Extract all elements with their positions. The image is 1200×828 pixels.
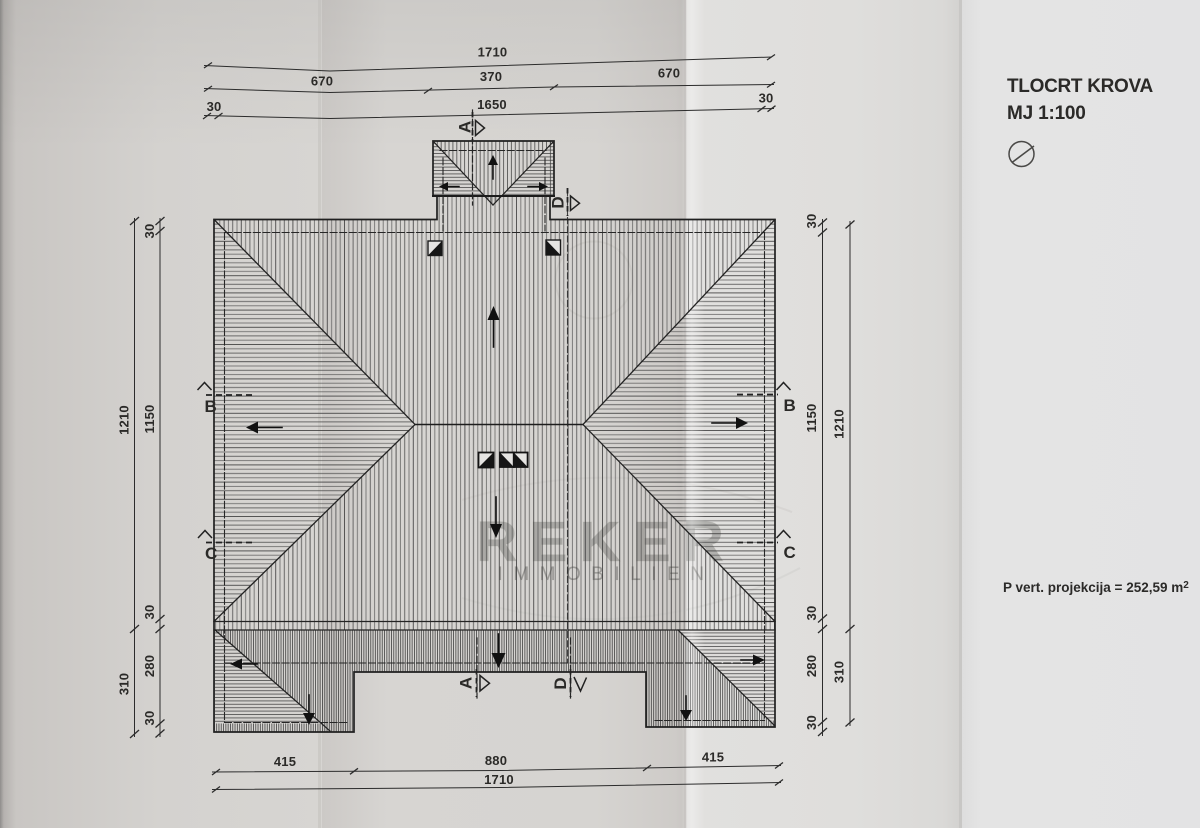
svg-text:TLOCRT KROVA: TLOCRT KROVA (1007, 76, 1154, 97)
svg-text:370: 370 (480, 69, 502, 84)
svg-text:30: 30 (804, 214, 819, 229)
svg-text:B: B (205, 397, 217, 416)
svg-text:B: B (784, 396, 796, 415)
svg-text:1650: 1650 (477, 97, 507, 112)
svg-text:1210: 1210 (117, 405, 132, 435)
svg-text:P vert. projekcija = 252,59 m2: P vert. projekcija = 252,59 m2 (1003, 580, 1189, 595)
svg-text:1150: 1150 (804, 403, 819, 432)
svg-text:1210: 1210 (832, 409, 847, 439)
svg-text:A: A (457, 677, 476, 689)
svg-text:30: 30 (759, 91, 774, 106)
svg-text:30: 30 (804, 715, 819, 730)
svg-text:30: 30 (142, 605, 157, 620)
svg-text:C: C (784, 543, 796, 562)
svg-text:880: 880 (485, 753, 507, 768)
svg-text:D: D (549, 196, 568, 208)
svg-text:1710: 1710 (478, 45, 508, 60)
svg-text:670: 670 (658, 66, 680, 81)
svg-text:280: 280 (804, 655, 819, 677)
svg-text:30: 30 (142, 224, 157, 239)
svg-text:415: 415 (702, 750, 724, 765)
svg-text:1150: 1150 (142, 404, 157, 433)
svg-text:310: 310 (117, 673, 132, 695)
svg-text:D: D (551, 677, 570, 689)
svg-text:C: C (205, 544, 217, 563)
svg-text:30: 30 (804, 606, 819, 621)
svg-text:30: 30 (207, 99, 222, 114)
svg-text:670: 670 (311, 74, 333, 89)
svg-text:280: 280 (142, 655, 157, 677)
svg-text:310: 310 (832, 661, 847, 683)
svg-text:415: 415 (274, 754, 296, 769)
svg-text:30: 30 (142, 711, 157, 726)
svg-text:MJ 1:100: MJ 1:100 (1007, 103, 1086, 124)
svg-text:1710: 1710 (484, 772, 514, 787)
